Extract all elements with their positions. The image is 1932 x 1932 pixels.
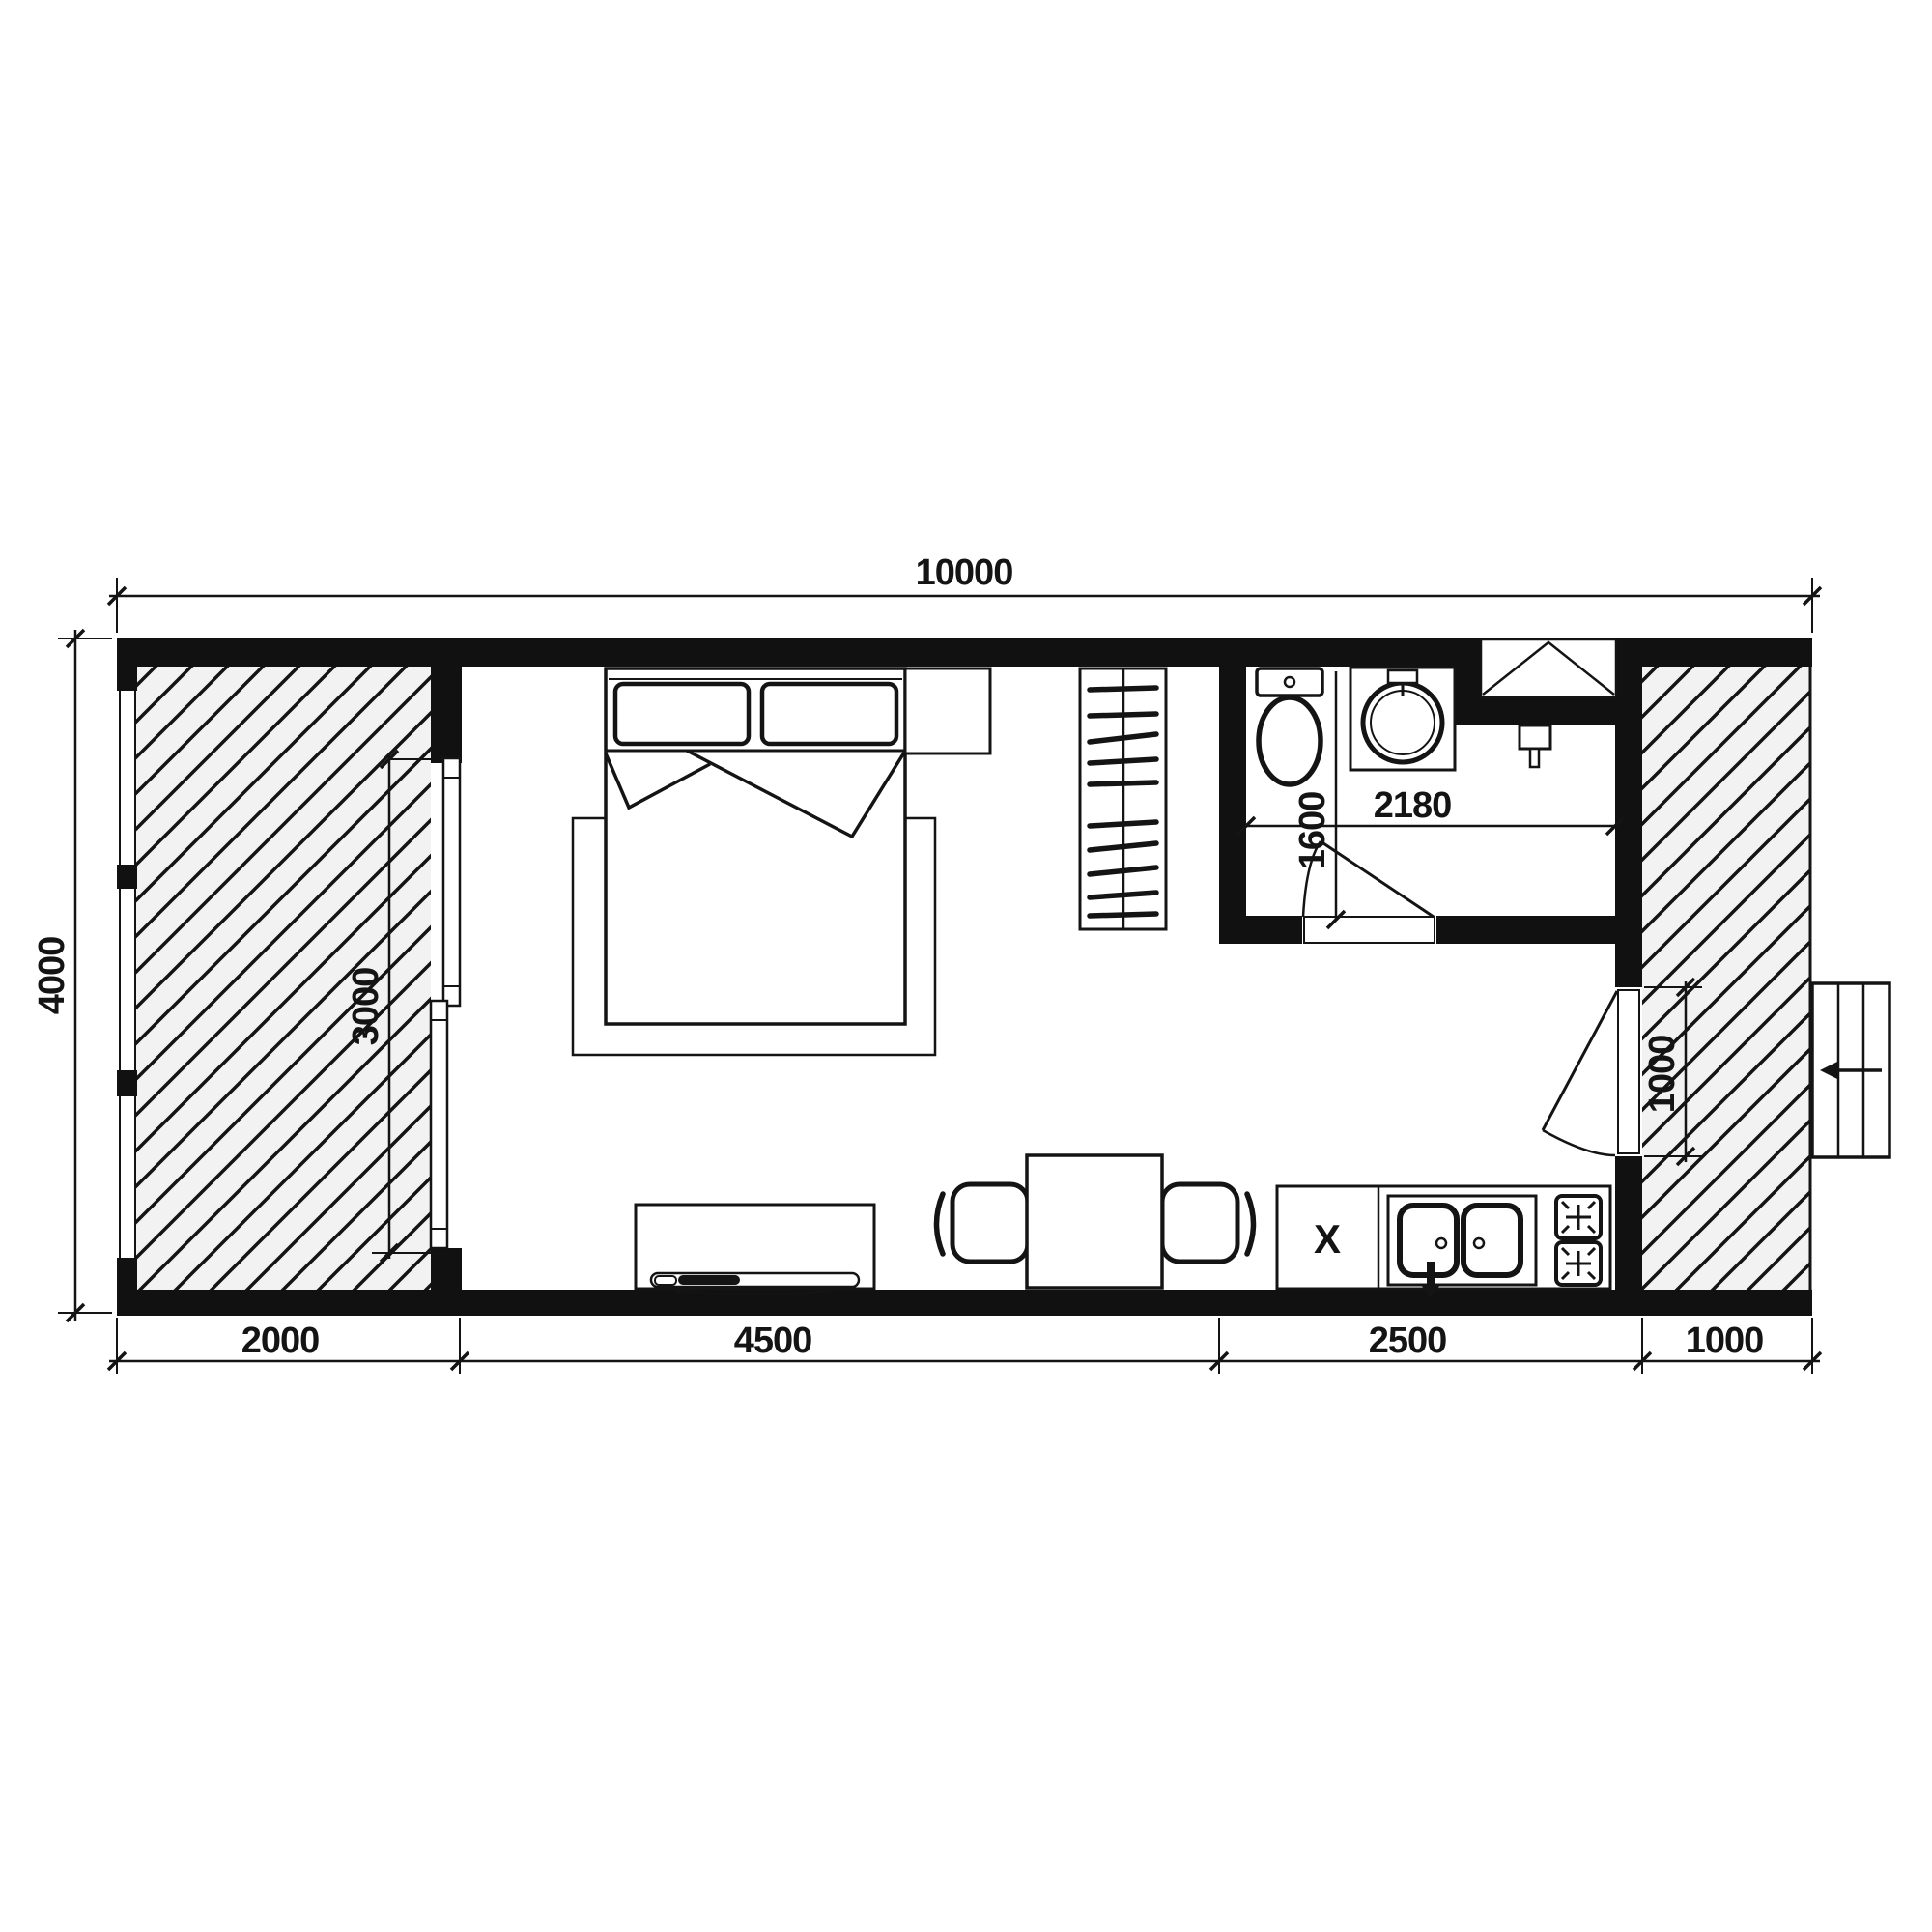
wall-bathroom-bottom-right [1436,916,1642,944]
wall-bottom [117,1290,1812,1316]
wall-right-lower [1615,1156,1642,1316]
bed-area [573,668,935,1055]
chair-seat-left [952,1184,1028,1262]
right-terrace-deck [1642,667,1810,1290]
tv-stand [636,1205,874,1294]
sliding-panel-terrace-side [431,1001,447,1248]
wall-right-upper [1615,638,1642,987]
bathroom-door-threshold [1304,917,1435,943]
sink-bowl-right [1463,1206,1520,1275]
pillow-left [615,684,749,744]
toilet [1257,668,1322,784]
chair-seat-right [1162,1184,1237,1262]
entry-door-label: 1000 [1642,1036,1683,1114]
entry-steps [1812,983,1889,1157]
stove [1556,1196,1601,1285]
floor-plan-page: X 10000 4000 [0,0,1932,1932]
facade-post [117,865,137,889]
bathroom-width-label: 2180 [1374,785,1452,826]
overall-width-label: 10000 [916,553,1013,593]
toilet-tank [1257,668,1322,696]
wall-niche-pier [1455,638,1483,724]
floor-plan-drawing: X 10000 4000 [0,0,1932,1932]
wall-terrace-partition-upper [431,638,462,763]
wall-niche-band [1481,697,1616,724]
segment-porch-label: 1000 [1686,1321,1764,1361]
sink-faucet [1427,1262,1435,1285]
segment-bedroom-label: 4500 [734,1321,812,1361]
segment-terrace-label: 2000 [241,1321,320,1361]
nightstand [905,668,990,753]
toilet-bowl [1259,697,1321,784]
wardrobe [1080,668,1166,929]
bathroom-depth-label: 1600 [1293,792,1333,870]
kitchen-counter: X [1277,1186,1610,1297]
burner-top [1562,1202,1595,1233]
wall-terrace-partition-lower [431,1248,462,1316]
appliance-marker-label: X [1314,1216,1341,1262]
burner-bottom [1562,1248,1595,1279]
pillow-right [762,684,896,744]
wall-bathroom-left [1219,638,1246,944]
washbasin [1350,668,1455,770]
dining-table [1027,1155,1162,1288]
terrace-opening-label: 3000 [346,968,386,1046]
wall-niche [1481,639,1616,697]
segment-kitchen-label: 2500 [1369,1321,1447,1361]
overall-height-label: 4000 [32,937,72,1015]
facade-post [117,1070,137,1096]
tv-screen-segment [678,1275,740,1285]
wall-bathroom-bottom-left [1219,916,1302,944]
entrance-door-panel [1618,990,1639,1153]
tv-screen-end [655,1276,676,1285]
basin-faucet [1388,670,1417,683]
sliding-panel-room-side [443,758,460,1006]
